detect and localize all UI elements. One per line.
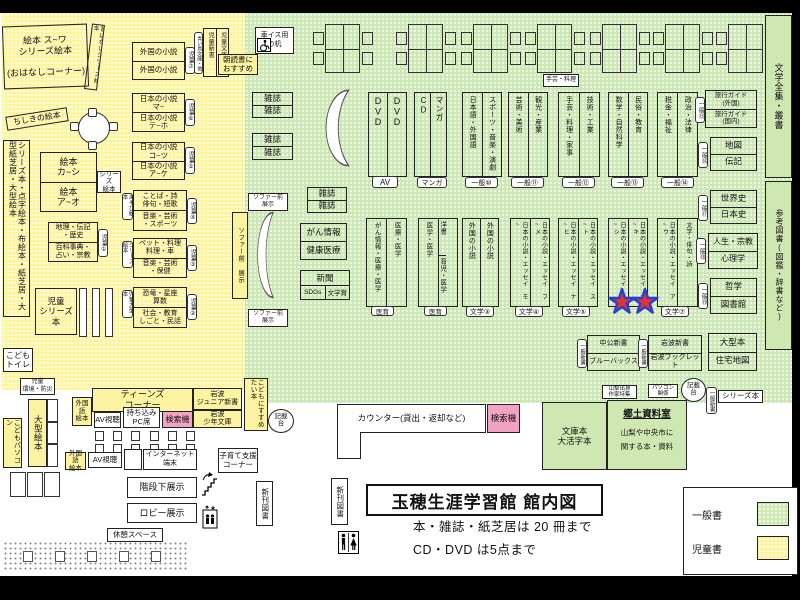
legend-label-children: 児童書 xyxy=(692,541,722,556)
internet-tanmatsu: インターネット 端末 xyxy=(143,449,197,470)
reading-table-6 xyxy=(653,24,712,72)
jinsei-shukyo: 人生・宗教心理学 xyxy=(708,233,758,269)
zasshi-rack-3: 雑誌雑誌 xyxy=(307,187,347,213)
kotoba-shi-haiku: ことば・詩 俳句・短歌音楽・芸術 ・スポーツ xyxy=(133,190,187,231)
ryoko-guide: 旅行ガイド (外国)旅行ガイド (国内) xyxy=(705,90,757,128)
sanko-tosho: 参考図書(図鑑・辞書など) xyxy=(765,181,792,350)
counter: カウンター(貸出・返却など) xyxy=(337,404,486,433)
kodomo-pc: こどもパソコン xyxy=(3,418,22,468)
legend-swatch-general xyxy=(757,502,789,526)
kyoryu-seiza: 恐竜・星座 算数社会・教育 しごと・民話 xyxy=(133,287,187,328)
stairs-icon xyxy=(199,470,218,497)
bunko-daikatsuji: 文庫本 大活字本 xyxy=(542,402,607,470)
av-shicho-1: AV視聴 xyxy=(94,412,121,428)
bungaku7-tag: 文学⑦ xyxy=(661,306,689,317)
jido6-tag: 児童⑥ xyxy=(185,99,195,126)
ippan-shinsho-tag-3: 一般新書 xyxy=(706,387,717,414)
kodomo-toilet: こども トイレ xyxy=(3,348,33,372)
wheelchair-icon xyxy=(257,38,271,52)
kodomo-susume-bon: こどもにすすめたい本 xyxy=(244,378,268,431)
bottom-black-bar xyxy=(0,576,800,600)
top-black-bar xyxy=(0,0,800,13)
reading-table-2 xyxy=(396,24,455,72)
ippan-shinsho-tag-2: 一般新書 xyxy=(638,339,648,368)
av-shicho-2: AV視聴 xyxy=(88,452,122,468)
chuko-shinsho: 中公新書ブルーバックス xyxy=(587,335,640,371)
shugei-ryori-label: 手芸・料理 xyxy=(543,74,579,87)
kaidan-shita-tenji: 階段下展示 xyxy=(127,477,197,498)
bungaku7-shelf: 日本の小説・エッセイ ア~ウ文学・俳句・詩 xyxy=(657,218,698,307)
nihon-shosetsu-ko: 日本の小説 コ~ツ日本の小説 ア~ケ xyxy=(132,142,185,180)
jido-kankyo-bosai: 児童 環境・防災 xyxy=(20,378,55,395)
aoitori-bunko-tag: 青い鳥文庫・他 xyxy=(194,32,203,74)
ippan-shinsho-tag-1: 一般新書 xyxy=(577,339,587,368)
ippan16-tag: 一般⑯ xyxy=(698,142,708,168)
iiku-tag-2: 医育 xyxy=(424,306,447,316)
series-ehon-tag: シリーズ 絵本 xyxy=(97,171,121,193)
ippan17-tag: 一般⑰ xyxy=(698,195,708,221)
sofa-mae-tenji-1: ソファー前 展示 xyxy=(248,193,288,211)
reading-table-5 xyxy=(590,24,649,72)
gaikokugo-ehon-2: 外国語 絵本 xyxy=(65,452,86,470)
legend: 一般書 児童書 xyxy=(683,487,798,575)
legend-row-children: 児童書 xyxy=(692,536,789,560)
iwanami-shinsho: 岩波新書岩波ブックレット xyxy=(648,335,702,371)
kisaidai-2: 記載 台 xyxy=(681,378,706,402)
series-tenji-ehon-shelf: シリーズ本・点字絵本・布絵本・紙芝居・大型紙芝居・大型絵本 xyxy=(3,140,30,317)
jido1-tag: 児童① xyxy=(98,229,108,257)
bungaku5-tag: 文学⑤ xyxy=(562,306,590,317)
cd-manga-shelf: CDマンガ xyxy=(414,92,447,177)
ippan10-tag: 一般⑩ xyxy=(465,177,498,188)
bungaku5-shelf: 日本の小説・エッセイ ナ~ヒ日本の小説・エッセイ ス~ト xyxy=(558,218,598,307)
ehon-ka-shi: 絵本 カ~シ絵本 ア~オ xyxy=(40,152,97,212)
kensakuki-counter: 検索機 xyxy=(487,404,520,433)
ippan12-tag: 一般⑫ xyxy=(562,177,595,188)
zasshi-rack-1: 雑誌雑誌 xyxy=(252,92,293,118)
iwanami-shonen-bunko: 岩波 少年文庫 xyxy=(193,410,242,428)
bungaku4-shelf: 日本の小説・エッセイ モ~日本の小説・エッセイ フ~メ xyxy=(510,218,550,307)
chiri-denki-rekishi: 地理・伝記 ・歴史百科事典・ 占い・宗教 xyxy=(48,222,98,262)
sofa-crescent-2 xyxy=(250,210,283,300)
shinbun-sdgs: 新聞SDGs文学賞 xyxy=(300,270,350,300)
page-title: 玉穂生涯学習館 館内図 xyxy=(366,484,603,516)
round-table xyxy=(70,108,116,148)
ippan10-shelf: 日本語・外国語スポーツ・音楽・演劇 xyxy=(462,92,502,177)
shinkan-tosho-1: 新刊図書 xyxy=(256,481,273,526)
ippan14-tag: 一般⑭ xyxy=(661,177,694,188)
jido5-tag: 児童⑤ xyxy=(185,147,195,174)
lobby-tenji: ロビー展示 xyxy=(127,503,197,523)
iryo-shelf-2: 医学・医学洋書育児・医学 xyxy=(418,218,458,307)
sofa-benches xyxy=(10,472,60,497)
iryo-shelf-1: がん情報・医療・医学医療・医学 xyxy=(366,218,407,307)
ippan15-tag: 一般⑮ xyxy=(695,97,705,123)
jido-series-bon: 児童 シリーズ本 xyxy=(35,288,77,335)
ippan11-tag: 一般⑪ xyxy=(511,177,544,188)
iwanami-junior-shinsho: 岩波 ジュニア新書 xyxy=(193,388,242,410)
chizu-denki: 地図伝記 xyxy=(710,137,757,171)
teens-chairs-1 xyxy=(95,431,195,441)
ogata-ehon-shelf xyxy=(47,399,58,467)
series-bon: シリーズ本 xyxy=(718,390,763,403)
bungaku3-tag: 文学③ xyxy=(466,306,494,317)
sofa-crescent-1 xyxy=(315,88,363,168)
dvd-shelf: DVDDVD xyxy=(368,92,407,177)
picturebook-corner: 絵本 ス~ワ シリーズ絵本 (おはなしコーナー) xyxy=(2,24,89,90)
ippan19-tag: 一般⑲ xyxy=(698,283,708,309)
nihon-shosetsu-ma: 日本の小説 マ~日本の小説 テ~ホ xyxy=(132,93,185,132)
tetsugaku-toshokan: 哲学図書館 xyxy=(710,278,757,314)
kisaidai-1: 記載 台 xyxy=(268,409,294,433)
asadoku-osusume: 朝読書に おすすめ xyxy=(218,54,258,75)
ippan13-tag: 一般⑬ xyxy=(611,177,644,188)
kyodo-shiryoshitsu: 郷土資料室山梨や中央市に 関する本・資料 xyxy=(607,400,687,470)
kensakuki-teens: 検索機 xyxy=(162,411,193,428)
bungaku-zenshu: 文学全集・叢書 xyxy=(765,15,792,178)
jido4-tag: 児童④ xyxy=(187,198,197,224)
gan-joho-kenko: がん情報健康医療 xyxy=(300,223,347,260)
manga-tag: マンガ xyxy=(417,177,447,188)
pet-ryori: ペット・料理 料理・車音楽・芸術 ・保健 xyxy=(133,238,187,278)
legend-swatch-children xyxy=(757,536,789,560)
bungaku3-shelf: 外国の小説外国の小説 xyxy=(462,218,499,307)
reading-table-4 xyxy=(525,24,584,72)
star-decoration xyxy=(608,286,660,318)
kyukei-dotted-area xyxy=(3,541,187,572)
ippan13-shelf: 数学・自然科学民俗・教育 xyxy=(608,92,648,177)
sofa-mae-strip: ソファー前 展示 xyxy=(232,212,248,299)
reading-table-3 xyxy=(461,24,520,72)
shinkan-tosho-2: 新刊図書 xyxy=(331,478,348,525)
ippan11-shelf: 芸術・美術観光・産業 xyxy=(508,92,548,177)
ippan18-tag: 一般⑱ xyxy=(696,238,706,264)
ogata-jutaku: 大型本住宅地図 xyxy=(708,333,757,371)
sofa-mae-tenji-2: ソファー前 展示 xyxy=(248,309,288,327)
gaikokugo-ehon-1: 外国語 絵本 xyxy=(72,397,92,426)
asobi-ehon-tag: あそび絵本 xyxy=(122,193,133,220)
reading-table-1 xyxy=(313,24,372,72)
ogata-ehon: 大型絵本 xyxy=(28,399,47,467)
iiku-tag-1: 医育 xyxy=(371,306,394,316)
bungaku4-tag: 文学④ xyxy=(515,306,543,317)
series-ehon-tag2: シリーズ絵本 xyxy=(122,241,133,268)
av-blank-box xyxy=(124,449,142,470)
kosodate-shien-corner: 子育て支援 コーナー xyxy=(218,448,258,473)
jido3-tag: 児童③ xyxy=(187,245,197,271)
pc-kankei: パソコン 関係 xyxy=(648,384,678,398)
legend-label-general: 一般書 xyxy=(692,507,722,522)
jido2-tag: 児童② xyxy=(187,294,197,320)
ippan14-shelf: 税金・福祉政治・法律 xyxy=(657,92,698,177)
loan-limit-note-books: 本・雑誌・紙芝居は 20 冊まで xyxy=(413,516,592,535)
sekaishi-nihonshi: 世界史日本史 xyxy=(710,190,757,224)
library-floor-map: 絵本 ス~ワ シリーズ絵本 (おはなしコーナー)昔ばなしシリーズ絵本ちしきの絵本… xyxy=(0,0,800,600)
counter-extension xyxy=(337,432,361,459)
kyukei-space: 休憩スペース xyxy=(107,528,163,542)
gaikoku-shosetsu-jido: 外国の小説外国の小説 xyxy=(132,42,185,80)
av-tag: AV xyxy=(372,176,398,188)
yamanashi-sakka: 山梨出身 作家特集 xyxy=(602,385,637,399)
elevator-icon xyxy=(202,505,218,529)
jido-ogata-tag: 児童大型本 xyxy=(122,290,133,318)
ippan12-shelf: 手芸・料理・家事技術・工業 xyxy=(558,92,600,177)
zasshi-rack-2: 雑誌雑誌 xyxy=(252,133,293,160)
shelf-slats xyxy=(79,288,113,337)
mochikomi-pc-seki: 持ち込み PC席 xyxy=(123,407,160,428)
legend-row-general: 一般書 xyxy=(692,502,789,526)
loan-limit-note-media: CD・DVD は5点まで xyxy=(413,539,536,558)
restroom-icon xyxy=(338,531,359,554)
